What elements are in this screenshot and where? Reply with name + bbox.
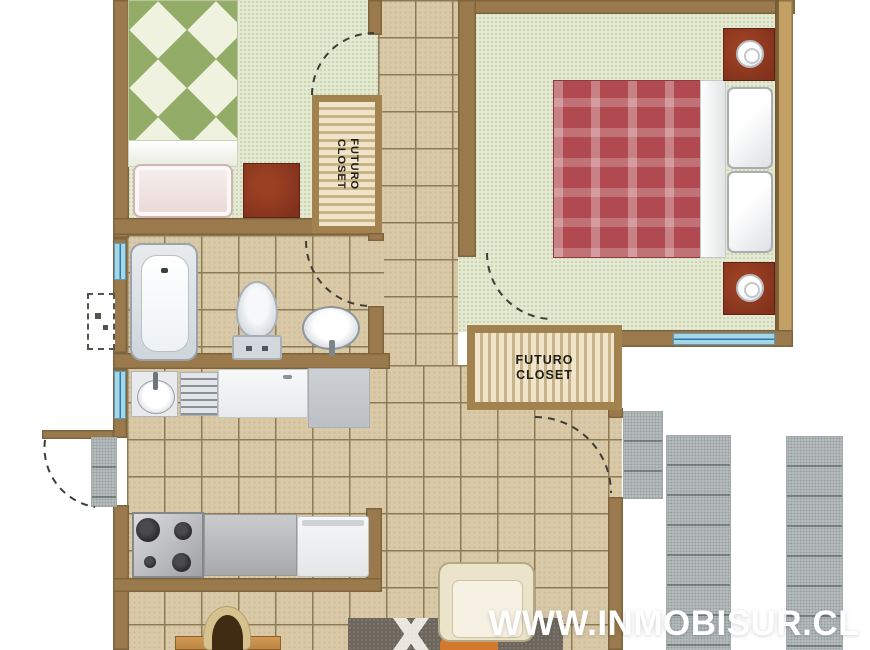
toilet-tank [232, 335, 282, 360]
wall-bedroom1-left [113, 0, 129, 238]
closet-label-line1: FUTURO [347, 138, 360, 190]
bed2-blanket [553, 80, 701, 258]
kitchen-window [114, 371, 126, 419]
futuro-closet-hall: FUTURO CLOSET [467, 325, 622, 410]
lamp-icon [736, 40, 764, 68]
closet-label-line2: CLOSET [334, 138, 347, 190]
floor-plan: FUTURO CLOSET FUTURO CLOSET WWW.INMOBISU… [0, 0, 870, 650]
entry-step-paver [92, 438, 116, 506]
wall-bathroom-right-stub [368, 233, 384, 241]
wall-kitchen-nook-bottom [113, 578, 382, 592]
stove-burner [172, 553, 191, 572]
bathroom-window [114, 243, 126, 280]
door-arc-side-entry [44, 440, 95, 507]
water-heater-outline [87, 293, 115, 350]
kitchen-appliance-gray [308, 368, 370, 428]
bed1-blanket [128, 0, 238, 142]
door-step-paver [624, 412, 662, 498]
bed2-sheet [700, 80, 726, 258]
closet-label: FUTURO CLOSET [334, 138, 360, 190]
kitchen-sink [131, 371, 178, 417]
watermark-text: WWW.INMOBISUR.CL [488, 604, 860, 644]
closet-label-line2: CLOSET [515, 368, 573, 383]
wall-hallway-top-stub [368, 0, 382, 35]
toilet-bowl [236, 281, 278, 338]
wall-bedroom2-left [458, 0, 476, 257]
kitchen-counter [218, 369, 308, 418]
hallway-floor [378, 0, 458, 369]
lamp-icon [736, 274, 764, 302]
stove-burner [174, 522, 192, 540]
bedroom1-nightstand [243, 163, 300, 218]
bathroom-sink [302, 306, 360, 350]
futuro-closet-bedroom1: FUTURO CLOSET [312, 95, 382, 233]
refrigerator [297, 516, 369, 577]
bed2-pillow-1 [727, 87, 773, 169]
bed2-pillow-2 [727, 171, 773, 253]
wall-bedroom2-top [458, 0, 795, 14]
kitchen-lower-counter [204, 514, 297, 576]
kitchen-drainboard [180, 372, 218, 416]
bedroom2-window [673, 333, 775, 345]
stove-burner [144, 556, 156, 568]
closet-label: FUTURO CLOSET [515, 353, 573, 383]
bathtub [130, 243, 198, 361]
bathtub-basin [141, 255, 189, 352]
closet-label-line1: FUTURO [515, 353, 573, 368]
bed1-sheet [128, 140, 238, 167]
wall-bedroom2-right [775, 0, 793, 347]
stove-burner [136, 518, 160, 542]
bed1-pillow [133, 164, 233, 218]
